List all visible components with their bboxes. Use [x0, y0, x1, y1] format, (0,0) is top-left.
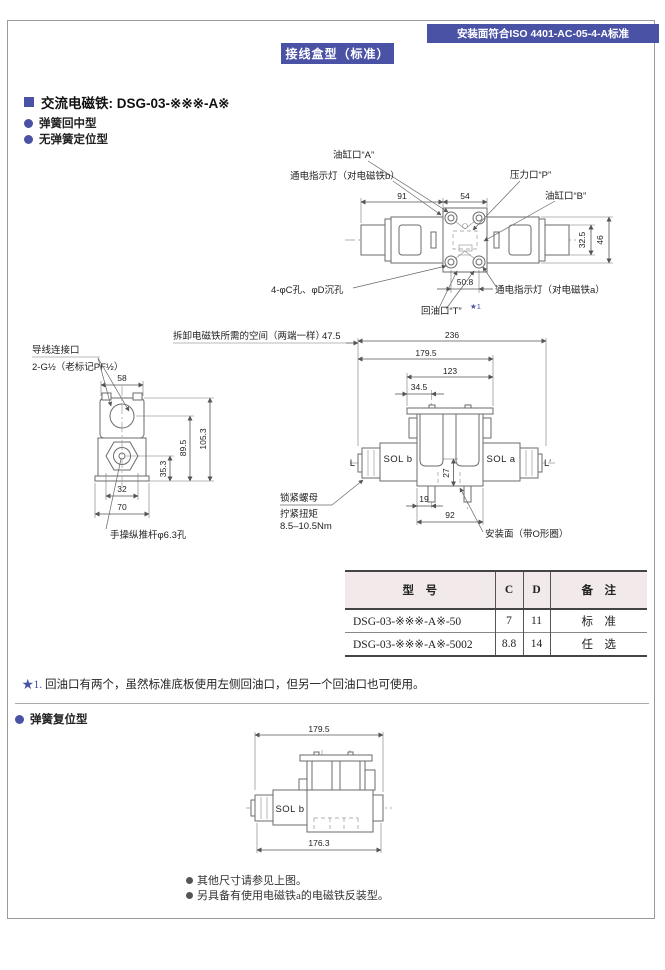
cell-c-1: 7: [495, 609, 523, 633]
bottom-note-1: 其他尺寸请参见上图。: [186, 872, 307, 888]
dim-32-5: 32.5: [577, 231, 587, 248]
cell-d-2: 14: [523, 633, 550, 657]
dim-92: 92: [445, 510, 455, 520]
spring-return-outline: SOL b: [246, 750, 392, 832]
type-bullet-1-text: 弹簧回中型: [39, 115, 97, 131]
table-row: DSG-03-※※※-A※-50 7 11 标 准: [345, 609, 647, 633]
circle-bullet-icon: [15, 715, 24, 724]
label-port-t-sup: ★1: [470, 302, 481, 311]
dim-179-5: 179.5: [415, 348, 437, 358]
type-bullet-2-text: 无弹簧定位型: [39, 131, 108, 147]
dim-32: 32: [117, 484, 127, 494]
dim-47-5: 47.5: [322, 331, 341, 342]
label-torque-value: 8.5–10.5Nm: [280, 521, 332, 532]
col-model: 型 号: [345, 571, 495, 609]
dim-35-3: 35.3: [158, 460, 168, 477]
valve-top-view-drawing: 91 54 32.5 46 50.8 油缸口“A” 通电指示灯（对电磁铁b） 压…: [233, 143, 658, 325]
dark-bullet-icon: [186, 877, 193, 884]
circle-bullet-icon: [24, 135, 33, 144]
valve-side-front-view-drawing: 58 35.3 89.5 105.3 32 70 导线连接口 2-G½（老标记P…: [10, 326, 655, 558]
dim-19: 19: [419, 494, 429, 504]
label-push-rod: 手操纵推杆φ6.3孔: [110, 529, 187, 541]
label-sol-b: SOL b: [383, 454, 412, 465]
dim-123: 123: [443, 366, 457, 376]
bottom-note-2-text: 另具备有使用电磁铁a的电磁铁反装型。: [197, 887, 389, 903]
iso-standard-banner: 安装面符合ISO 4401-AC-05-4-A标准: [427, 24, 659, 43]
valve-top-view-outline: [345, 208, 583, 272]
footnote-marker: ★1.: [22, 679, 42, 691]
dim-34-5: 34.5: [411, 382, 428, 392]
label-lamp-b: 通电指示灯（对电磁铁b）: [290, 170, 400, 182]
cell-note-1: 标 准: [550, 609, 647, 633]
label-sol-a: SOL a: [486, 454, 515, 465]
label-l-prime: L′: [544, 458, 551, 469]
dim-91: 91: [397, 191, 407, 201]
label-conduit-line2: 2-G½（老标记PF½）: [32, 361, 123, 373]
bottom-note-2: 另具备有使用电磁铁a的电磁铁反装型。: [186, 887, 389, 903]
footnote: ★1. 回油口有两个，虽然标准底板使用左侧回油口，但另一个回油口也可使用。: [22, 676, 425, 692]
cell-model-2: DSG-03-※※※-A※-5002: [345, 633, 495, 657]
label-port-t: 回油口“T”: [421, 305, 462, 317]
dim-spring-179-5: 179.5: [308, 724, 330, 734]
dim-70: 70: [117, 502, 127, 512]
spring-return-drawing: SOL b 179.5 176.3: [240, 722, 460, 867]
dim-27: 27: [441, 468, 451, 478]
label-torque: 拧紧扭矩: [280, 508, 319, 520]
col-d: D: [523, 571, 550, 609]
label-lamp-a: 通电指示灯（对电磁铁a）: [495, 284, 605, 296]
label-conduit-line1: 导线连接口: [32, 344, 80, 356]
type-bullet-2: 无弹簧定位型: [24, 131, 108, 147]
table-row: DSG-03-※※※-A※-5002 8.8 14 任 选: [345, 633, 647, 657]
spring-return-heading: 弹簧复位型: [15, 711, 88, 727]
cell-c-2: 8.8: [495, 633, 523, 657]
label-port-a: 油缸口“A”: [333, 149, 374, 161]
label-lock-nut: 锁紧螺母: [280, 492, 318, 504]
cell-d-1: 11: [523, 609, 550, 633]
section-banner: 接线盒型（标准）: [281, 43, 394, 64]
cell-model-1: DSG-03-※※※-A※-50: [345, 609, 495, 633]
label-mounting-face: 安装面（带O形圈）: [485, 528, 568, 540]
label-holes: 4-φC孔、φD沉孔: [271, 285, 344, 296]
dim-58: 58: [117, 373, 127, 383]
section-divider: [15, 703, 649, 704]
col-note: 备 注: [550, 571, 647, 609]
circle-bullet-icon: [24, 119, 33, 128]
spec-table: 型 号 C D 备 注 DSG-03-※※※-A※-50 7 11 标 准 DS…: [345, 570, 647, 657]
section-heading-text: 交流电磁铁: DSG-03-※※※-A※: [41, 92, 230, 112]
label-port-p: 压力口“P”: [510, 169, 551, 181]
cell-note-2: 任 选: [550, 633, 647, 657]
dim-89-5: 89.5: [178, 439, 188, 456]
dim-54: 54: [460, 191, 470, 201]
footnote-text: 回油口有两个，虽然标准底板使用左侧回油口，但另一个回油口也可使用。: [45, 679, 425, 691]
label-port-b: 油缸口“B”: [545, 190, 586, 202]
col-c: C: [495, 571, 523, 609]
side-view-outline: [95, 386, 149, 488]
dim-46: 46: [595, 235, 605, 245]
label-removal-space: 拆卸电磁铁所需的空间（两端一样）: [173, 330, 325, 342]
bottom-note-1-text: 其他尺寸请参见上图。: [197, 872, 307, 888]
spring-return-heading-text: 弹簧复位型: [30, 711, 88, 727]
section-heading: 交流电磁铁: DSG-03-※※※-A※: [24, 92, 230, 112]
dim-spring-176-3: 176.3: [308, 838, 330, 848]
dim-105-3: 105.3: [198, 428, 208, 450]
type-bullet-1: 弹簧回中型: [24, 115, 97, 131]
front-view-outline: SOL b SOL a L L′: [350, 390, 555, 510]
dim-236: 236: [445, 330, 459, 340]
table-header-row: 型 号 C D 备 注: [345, 571, 647, 609]
label-l: L: [350, 458, 355, 469]
dim-50-8: 50.8: [457, 277, 474, 287]
front-view-labels: 拆卸电磁铁所需的空间（两端一样） 47.5 锁紧螺母 拧紧扭矩 8.5–10.5…: [173, 330, 568, 540]
square-bullet-icon: [24, 97, 34, 107]
label-spring-sol-b: SOL b: [275, 804, 304, 815]
dark-bullet-icon: [186, 892, 193, 899]
catalog-page: 安装面符合ISO 4401-AC-05-4-A标准 接线盒型（标准） 交流电磁铁…: [0, 0, 665, 970]
